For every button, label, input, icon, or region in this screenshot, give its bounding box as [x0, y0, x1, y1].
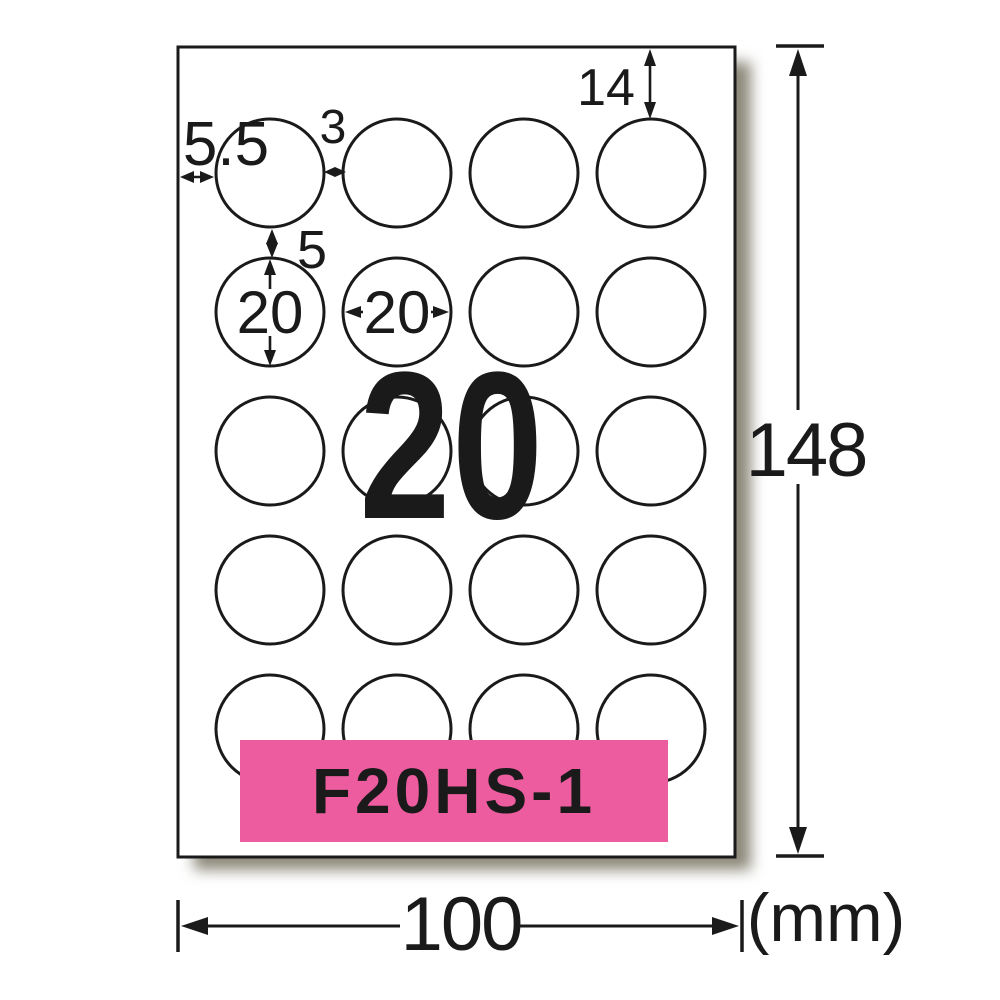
dim-sheet-width: 100	[178, 882, 742, 967]
arrow-right-icon	[712, 917, 739, 935]
dim-sheet-height: 148	[746, 46, 867, 856]
arrow-up-icon	[789, 49, 807, 76]
dim-label-diameter-v-value: 20	[237, 279, 304, 346]
dim-left-margin: 5.5	[180, 110, 269, 183]
arrow-left-icon	[181, 917, 208, 935]
label-sheet-diagram: 20 5.5 3 14 5	[0, 0, 1000, 1000]
dim-row-gap-value: 5	[297, 220, 327, 280]
model-number: F20HS-1	[312, 755, 596, 827]
dim-column-gap-value: 3	[320, 101, 347, 154]
dim-label-diameter-h-value: 20	[364, 279, 431, 346]
model-banner-group: F20HS-1	[240, 740, 668, 842]
diagram-canvas: 20 5.5 3 14 5	[0, 0, 1000, 1000]
dim-top-margin-value: 14	[577, 59, 635, 117]
dim-sheet-width-value: 100	[401, 882, 522, 967]
arrow-down-icon	[789, 827, 807, 854]
unit-label: (mm)	[747, 880, 906, 956]
dim-sheet-height-value: 148	[746, 408, 867, 493]
dim-left-margin-value: 5.5	[183, 110, 269, 179]
